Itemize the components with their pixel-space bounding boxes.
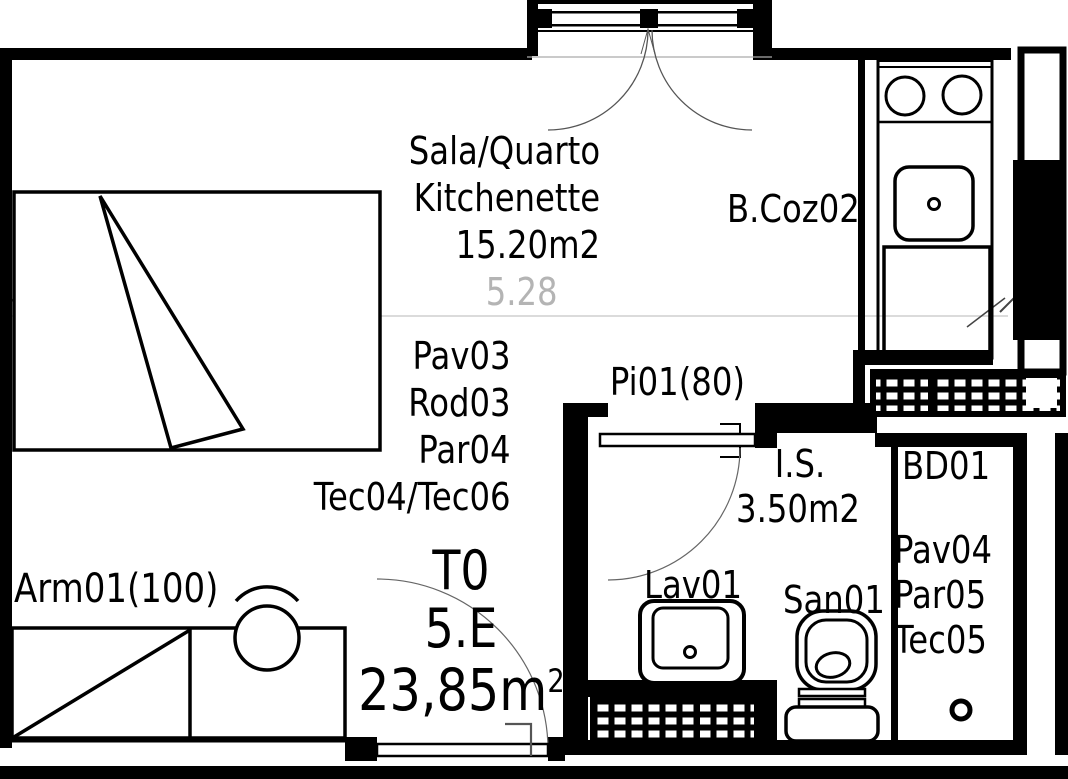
floor-plan: Sala/Quarto Kitchenette 15.20m2 5.28 Pav… (0, 0, 1068, 779)
room-area: 15.20m2 (409, 222, 600, 269)
kitchen-counter (878, 54, 992, 358)
unit-area: 23,85m2 (358, 659, 564, 722)
tile-strip-top (873, 372, 1063, 414)
kitchen-cabinet (884, 247, 990, 353)
room-name-line2: Kitchenette (409, 175, 600, 222)
unit-number: 5.E (358, 600, 564, 658)
unit-title-block: T0 5.E 23,85m2 (358, 542, 564, 721)
room-name-line1: Sala/Quarto (409, 128, 600, 175)
interior-door-pi01 (600, 424, 755, 580)
kitchen-sink-icon (895, 167, 973, 240)
door-swing-arcs (548, 29, 752, 130)
unit-area-exponent: 2 (547, 662, 564, 700)
window-top (527, 9, 772, 130)
finish-code: Pav04 (894, 528, 992, 573)
finish-code: Tec04/Tec06 (314, 474, 511, 521)
tile-strip-bathroom (593, 696, 757, 744)
bd-room-label: BD01 (902, 443, 990, 490)
finish-code: Tec05 (894, 618, 992, 663)
washbasin-label: Lav01 (644, 562, 742, 609)
bd-room-finishes: Pav04 Par05 Tec05 (894, 528, 992, 663)
cooktop-icon (886, 76, 981, 115)
chair-icon (235, 587, 299, 670)
finish-code: Par05 (894, 573, 992, 618)
bathroom-name: I.S. (746, 441, 853, 488)
toilet-label: San01 (783, 577, 885, 624)
main-room-finishes: Pav03 Rod03 Par04 Tec04/Tec06 (314, 333, 511, 521)
wardrobe-label: Arm01(100) (14, 566, 218, 613)
service-shaft (1013, 50, 1065, 372)
floor-drain-icon (952, 701, 970, 719)
unit-type: T0 (358, 542, 564, 600)
main-room-label-block: Sala/Quarto Kitchenette 15.20m2 5.28 (409, 128, 600, 316)
interior-door-label: Pi01(80) (610, 359, 744, 406)
kitchen-label: B.Coz02 (727, 186, 860, 233)
bathroom-area: 3.50m2 (734, 486, 862, 533)
toilet-icon (786, 611, 878, 741)
finish-code: Rod03 (314, 380, 511, 427)
washbasin-icon (640, 601, 744, 683)
finish-code: Par04 (314, 427, 511, 474)
room-width-dim: 5.28 (409, 269, 600, 316)
finish-code: Pav03 (314, 333, 511, 380)
bathroom-door-arc (608, 448, 740, 580)
